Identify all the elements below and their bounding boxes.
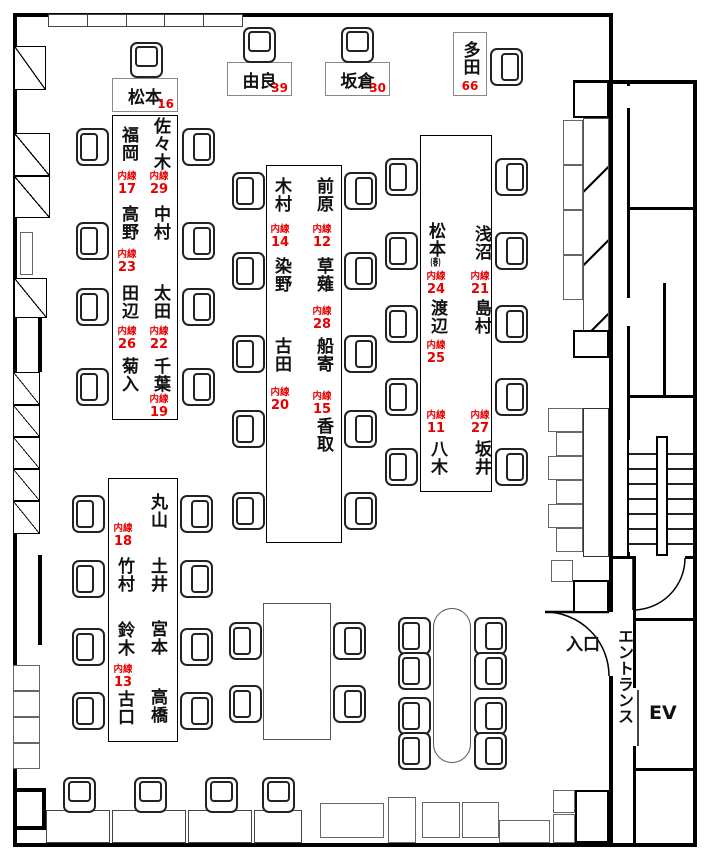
extension-label: 内線28 [306, 307, 338, 332]
meeting-table [263, 603, 331, 740]
desk-extension: 66 [454, 79, 486, 93]
chair [398, 617, 431, 655]
chair [229, 622, 262, 660]
seat-name: 島村 [472, 299, 489, 335]
chair [182, 368, 215, 406]
chair [72, 692, 105, 730]
wall-hall-right-lower [633, 746, 636, 843]
extension-label: 内線26 [111, 327, 143, 352]
chair [385, 305, 418, 343]
seat-name: 古田 [272, 337, 289, 373]
window-cabinet [13, 469, 40, 501]
tall-cabinet [583, 408, 609, 557]
chair [72, 628, 105, 666]
seat-name: 中村 [151, 205, 168, 241]
extension-label: 内線17 [111, 172, 143, 197]
chair [182, 288, 215, 326]
chair [76, 222, 109, 260]
seat-name: 宮本 [148, 620, 165, 656]
wall-corridor-a [627, 83, 630, 86]
chair [180, 628, 213, 666]
cabinet [13, 743, 40, 769]
desk-sakakura: 坂倉 30 [325, 62, 390, 96]
seat-name: 八木 [428, 440, 445, 476]
chair [398, 652, 431, 690]
closet [573, 580, 609, 613]
chair [232, 492, 265, 530]
chair [180, 495, 213, 533]
wall-right-upper [609, 13, 613, 612]
cabinet [548, 408, 583, 432]
chair [474, 617, 507, 655]
extension-label: 内線14 [264, 225, 296, 250]
chair [398, 697, 431, 735]
chair [232, 410, 265, 448]
closet [573, 330, 609, 358]
chair [474, 697, 507, 735]
seat-name: 竹村 [115, 557, 132, 593]
desk [188, 810, 252, 843]
chair [344, 252, 377, 290]
chair [232, 252, 265, 290]
cabinet [388, 797, 416, 843]
cabinet [553, 790, 575, 813]
wall-room-divider-3 [663, 283, 666, 395]
window-cabinet [14, 278, 47, 318]
cabinet [556, 480, 583, 504]
extension-label: 内線12 [306, 225, 338, 250]
wall-step-c [13, 826, 46, 830]
seat-name: 佐々木 [151, 117, 168, 171]
seat-name: 鈴木 [115, 621, 132, 657]
window-cabinet [14, 46, 46, 90]
seat-name: 浅沼 [472, 225, 489, 261]
entrance-label: 入口 [566, 630, 600, 655]
wall-room-divider-2 [627, 395, 693, 398]
seat-name: 千葉 [151, 357, 168, 393]
chair [385, 158, 418, 196]
cabinet [563, 210, 583, 255]
extension-label: 内線15 [306, 392, 338, 417]
chair [490, 48, 523, 86]
chair [180, 560, 213, 598]
seat-name: 福岡 [119, 126, 136, 162]
wall-bottom [13, 843, 697, 847]
pillar [20, 232, 33, 275]
wall-jog-lower [38, 555, 42, 645]
extension-label: 内線23 [111, 250, 143, 275]
window-cabinet [13, 501, 40, 534]
wall-outer-right [693, 80, 697, 847]
cabinet [556, 528, 583, 552]
desk-yura: 由良 39 [227, 62, 292, 96]
seat-name: 高橋 [148, 688, 165, 724]
closet [575, 790, 609, 843]
extension-label: 内線19 [143, 395, 175, 420]
window-cabinet [14, 176, 50, 218]
chair [344, 492, 377, 530]
window-cabinet [13, 437, 40, 469]
desk-matsumoto: 松本 16 [112, 78, 178, 112]
wall-jog-upper [38, 318, 42, 372]
seat-name: 丸山 [148, 493, 165, 529]
seat-name: 香取 [314, 417, 331, 453]
extension-label: 内線25 [420, 341, 452, 366]
window-cabinet [14, 133, 50, 176]
extension-label: 内線24 [420, 272, 452, 297]
extension-label: 内線20 [264, 388, 296, 413]
chair [385, 448, 418, 486]
chair [76, 128, 109, 166]
desk [46, 810, 110, 843]
seat-name: 太田 [151, 284, 168, 320]
desk-extension: 16 [157, 97, 174, 111]
chair [76, 288, 109, 326]
cabinet [551, 560, 573, 582]
seat-name: 田辺 [119, 284, 136, 320]
extension-label: 内線22 [143, 327, 175, 352]
chair [474, 732, 507, 770]
elevator-label: EV [649, 702, 677, 724]
chair [333, 685, 366, 723]
chair [182, 222, 215, 260]
floor-plan: 松本 16 由良 39 坂倉 30 多田 66 福岡 内線17 高野 内線23 … [0, 0, 708, 863]
stair-handrail [656, 436, 668, 556]
wall-corridor-b [627, 108, 630, 298]
cabinet [563, 120, 583, 165]
chair [341, 27, 374, 63]
chair [63, 777, 96, 813]
chair [232, 335, 265, 373]
entrance-hall-label: エントランス [612, 628, 636, 724]
window-cabinet [13, 405, 40, 437]
hall-door-swing [633, 558, 685, 610]
cabinet [13, 665, 40, 691]
desk-tada: 多田 66 [453, 32, 487, 96]
extension-label: 内線11 [420, 411, 452, 436]
cabinet [563, 165, 583, 210]
chair [205, 777, 238, 813]
seat-name: 渡辺 [428, 299, 445, 335]
chair [333, 622, 366, 660]
seat-name: 坂井 [472, 440, 489, 476]
seat-name: 前原 [314, 177, 331, 213]
cabinet [320, 803, 384, 838]
chair [495, 232, 528, 270]
extension-label: 内線18 [107, 524, 139, 549]
extension-label: 内線21 [464, 272, 496, 297]
extension-label: 内線29 [143, 172, 175, 197]
seat-name: 船寄 [314, 337, 331, 373]
cabinet [553, 814, 575, 843]
chair [243, 27, 276, 63]
chair [398, 732, 431, 770]
chair [495, 448, 528, 486]
cabinet [556, 432, 583, 456]
chair [385, 232, 418, 270]
seat-name: 松本(春) [426, 222, 443, 268]
wall-ev-bottom [633, 768, 693, 771]
closet [573, 81, 609, 118]
chair [344, 172, 377, 210]
desk [112, 810, 186, 843]
seat-name: 高野 [119, 205, 136, 241]
seat-name: 古口 [115, 690, 132, 726]
seat-name: 土井 [148, 557, 165, 593]
desk [254, 810, 302, 843]
top-cabinet-strip [48, 14, 243, 27]
chair [344, 335, 377, 373]
seat-name: 木村 [272, 177, 289, 213]
seat-name: 菊入 [119, 357, 136, 393]
seat-name: 草薙 [314, 257, 331, 293]
cabinet [499, 820, 550, 843]
louver-panel [583, 118, 609, 331]
chair [495, 158, 528, 196]
cabinet [422, 802, 460, 838]
cabinet [548, 504, 583, 528]
chair [76, 368, 109, 406]
chair [130, 42, 163, 78]
chair [344, 410, 377, 448]
chair [495, 378, 528, 416]
desk-name: 多田 [458, 41, 483, 75]
chair [474, 652, 507, 690]
extension-label: 内線27 [464, 411, 496, 436]
chair [229, 685, 262, 723]
wall-room-divider-1 [627, 207, 693, 210]
chair [262, 777, 295, 813]
window-cabinet [13, 372, 40, 405]
chair [495, 305, 528, 343]
elevator-door [637, 690, 639, 746]
cabinet [13, 717, 40, 743]
meeting-table-oval [433, 608, 471, 763]
extension-label: 内線13 [107, 665, 139, 690]
desk-extension: 39 [271, 81, 288, 95]
chair [180, 692, 213, 730]
cabinet [13, 691, 40, 717]
cabinet [563, 255, 583, 300]
cabinet [462, 802, 499, 838]
seat-name: 染野 [272, 257, 289, 293]
chair [134, 777, 167, 813]
chair [232, 172, 265, 210]
chair [72, 560, 105, 598]
chair [385, 378, 418, 416]
cabinet [548, 456, 583, 480]
desk-extension: 30 [369, 81, 386, 95]
chair [72, 495, 105, 533]
chair [182, 128, 215, 166]
